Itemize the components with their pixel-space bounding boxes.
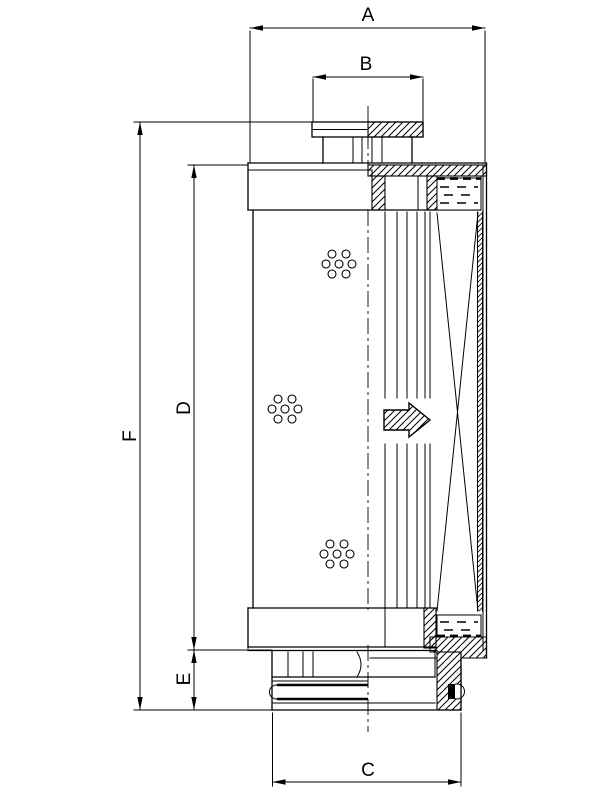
filter-element-cross-section: A B C D E F — [0, 0, 613, 793]
dim-label-d: D — [174, 401, 195, 415]
shell-wall-section — [478, 212, 483, 611]
dim-label-b: B — [360, 54, 373, 75]
dim-label-a: A — [362, 5, 375, 26]
o-ring-seat — [448, 684, 455, 699]
seal-block-bottom — [437, 615, 481, 637]
drawing-sheet: A B C D E F — [0, 0, 613, 793]
seal-block-top — [437, 177, 481, 210]
end-fitting-section — [437, 652, 461, 710]
dim-label-f: F — [120, 430, 141, 442]
top-cap-hatch — [368, 122, 423, 137]
flange-hatch-band — [368, 165, 487, 176]
sheet-background — [0, 0, 613, 793]
dim-label-c: C — [361, 760, 375, 781]
dim-label-e: E — [174, 673, 195, 686]
